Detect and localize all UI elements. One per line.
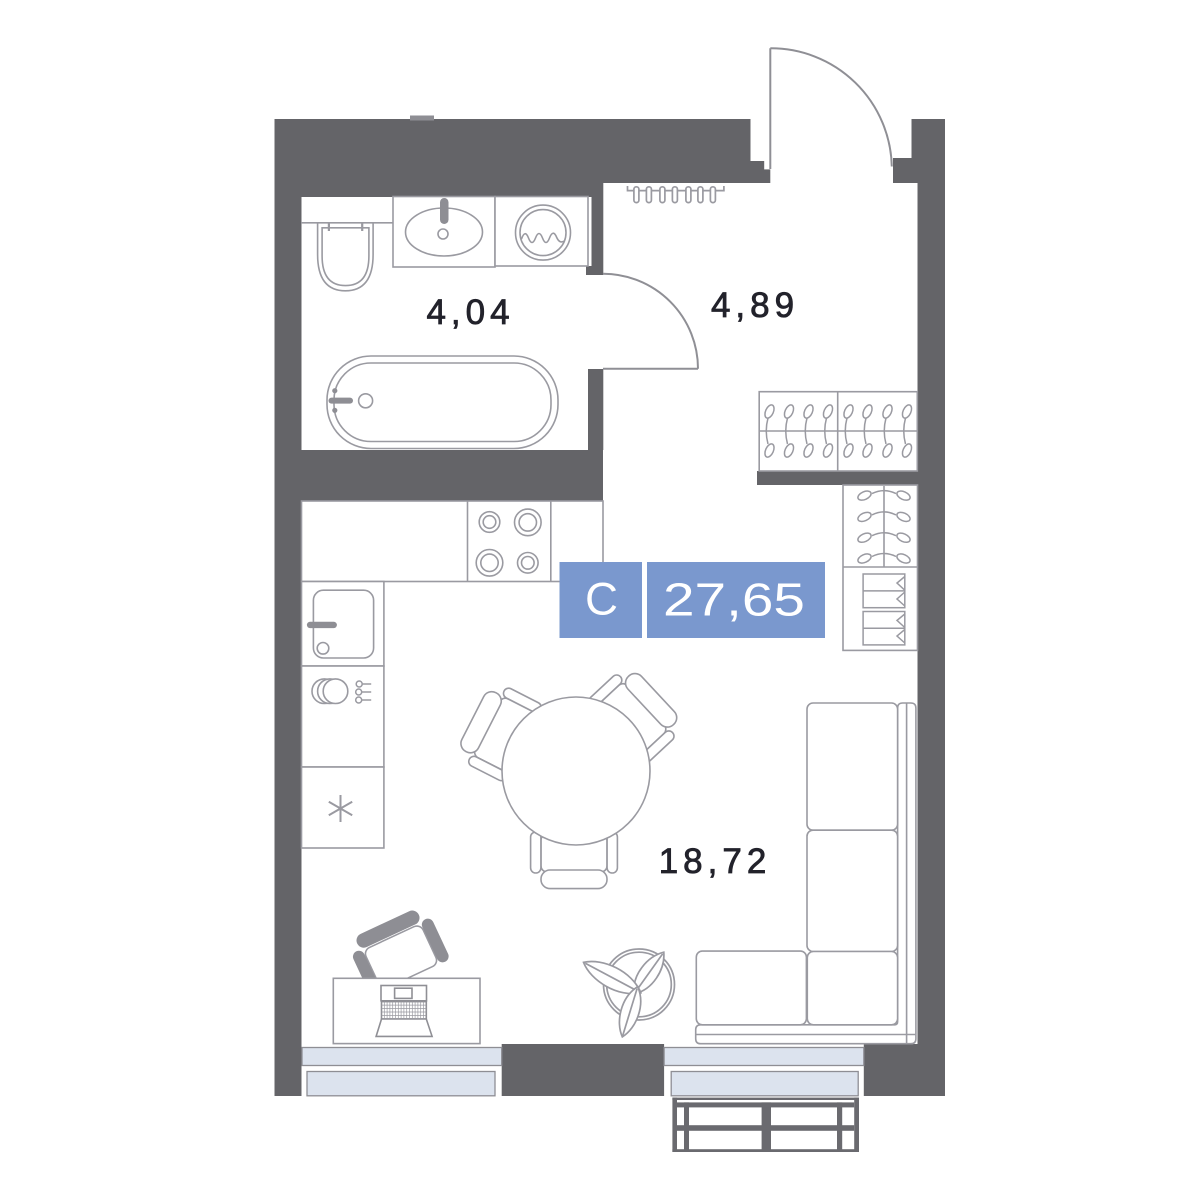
svg-text:С: С (585, 574, 618, 625)
svg-text:4,89: 4,89 (711, 286, 799, 325)
svg-text:27,65: 27,65 (663, 574, 805, 626)
svg-text:4,04: 4,04 (426, 293, 514, 332)
svg-text:18,72: 18,72 (659, 842, 772, 881)
